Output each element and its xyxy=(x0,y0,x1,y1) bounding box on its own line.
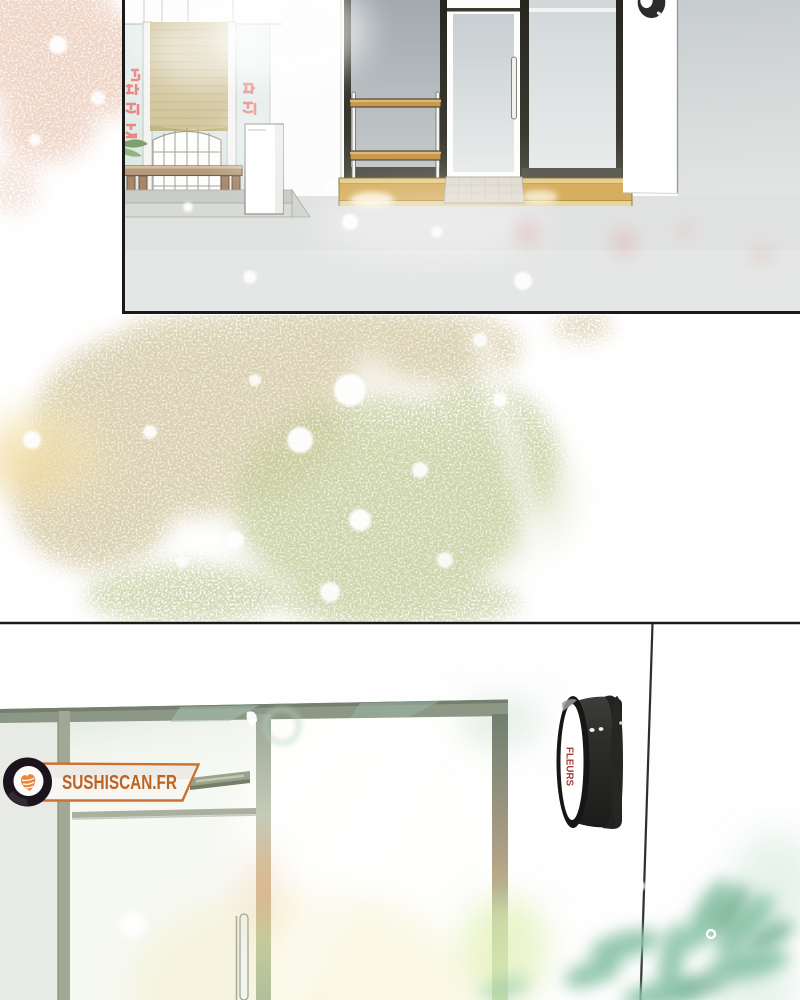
svg-text:FLEURS: FLEURS xyxy=(564,747,576,786)
svg-text:SUSHISCAN.FR: SUSHISCAN.FR xyxy=(62,771,177,794)
